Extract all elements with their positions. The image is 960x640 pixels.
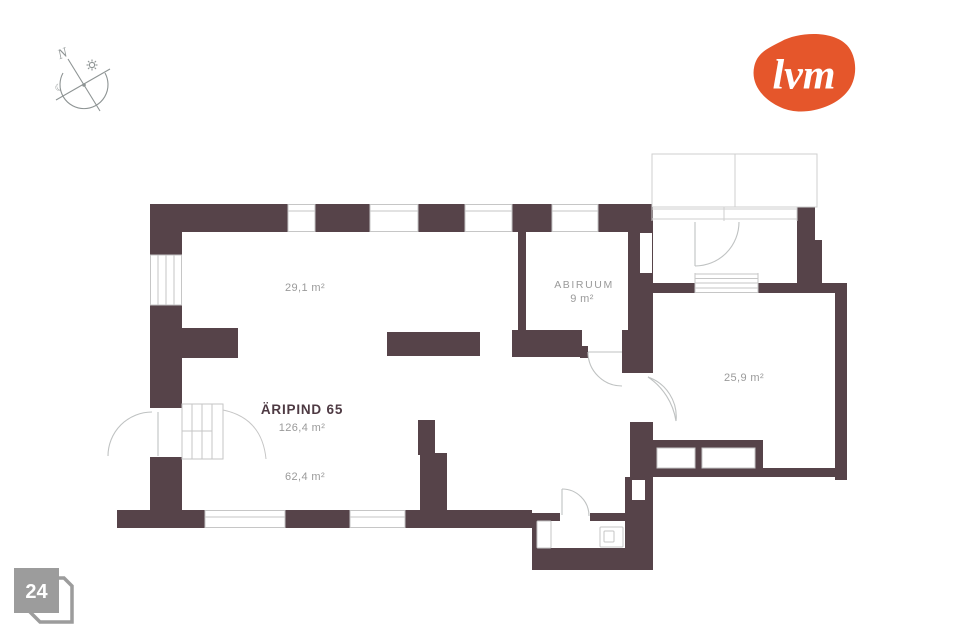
- floorplan-page: N ☾ lvm: [0, 0, 960, 640]
- bathroom-fixtures: [537, 521, 623, 548]
- aripind-area-label: 126,4 m²: [279, 422, 326, 434]
- floor-plan: 29,1 m² ABIRUUM 9 m² ÄRIPIND 65 126,4 m²…: [0, 0, 960, 640]
- staircase: [182, 404, 266, 459]
- windows: [151, 205, 756, 528]
- page-number-badge: 24: [8, 560, 84, 636]
- abiruum-area-label: 9 m²: [570, 293, 594, 305]
- sink-icon: [537, 521, 551, 548]
- abiruum-name-label: ABIRUUM: [554, 279, 614, 291]
- porch-outline: [652, 154, 817, 221]
- room-259-area-label: 25,9 m²: [724, 372, 764, 384]
- page-number-text: 24: [25, 581, 48, 603]
- aripind-title-label: ÄRIPIND 65: [261, 402, 343, 417]
- room-624-area-label: 62,4 m²: [285, 471, 325, 483]
- steps: [695, 273, 758, 293]
- room-291-area-label: 29,1 m²: [285, 282, 325, 294]
